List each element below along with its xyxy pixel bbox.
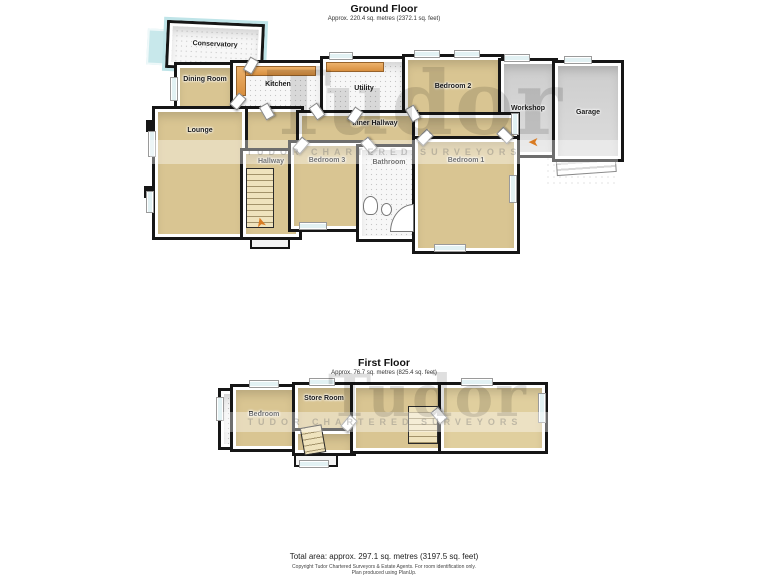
- watermark-text-ground: Tudor: [266, 64, 564, 143]
- toilet-icon: [363, 196, 378, 215]
- ground-floor-title: Ground Floor: [0, 3, 768, 15]
- footer-produced: Plan produced using PlanUp.: [0, 570, 768, 576]
- ground-floor-subtitle: Approx. 220.4 sq. metres (2372.1 sq. fee…: [0, 16, 768, 22]
- entrance-arrow-icon: ➤: [528, 136, 539, 149]
- first-floor-subtitle: Approx. 76.7 sq. metres (825.4 sq. feet): [0, 370, 768, 376]
- window: [300, 223, 326, 229]
- window: [250, 381, 278, 387]
- window: [171, 78, 177, 100]
- first-floor-title: First Floor: [0, 357, 768, 369]
- sink-icon: [381, 203, 392, 216]
- watermark-text-first: Tudor: [328, 370, 528, 422]
- ground-floor-header: Ground Floor Approx. 220.4 sq. metres (2…: [0, 3, 768, 22]
- window: [435, 245, 465, 251]
- window: [510, 176, 516, 202]
- window: [147, 192, 153, 212]
- label-garage: Garage: [555, 109, 621, 117]
- label-lounge: Lounge: [155, 127, 245, 135]
- window: [565, 57, 591, 63]
- window: [300, 461, 328, 467]
- label-conservatory: Conservatory: [169, 39, 261, 51]
- footer-total-area: Total area: approx. 297.1 sq. metres (31…: [0, 552, 768, 561]
- room-lounge: Lounge: [152, 106, 248, 240]
- label-dining-room: Dining Room: [183, 76, 227, 84]
- floorplan-page: { "ground_floor": { "title": "Ground Flo…: [0, 0, 768, 576]
- wall-stub: [146, 120, 154, 132]
- first-floor-header: First Floor Approx. 76.7 sq. metres (825…: [0, 357, 768, 376]
